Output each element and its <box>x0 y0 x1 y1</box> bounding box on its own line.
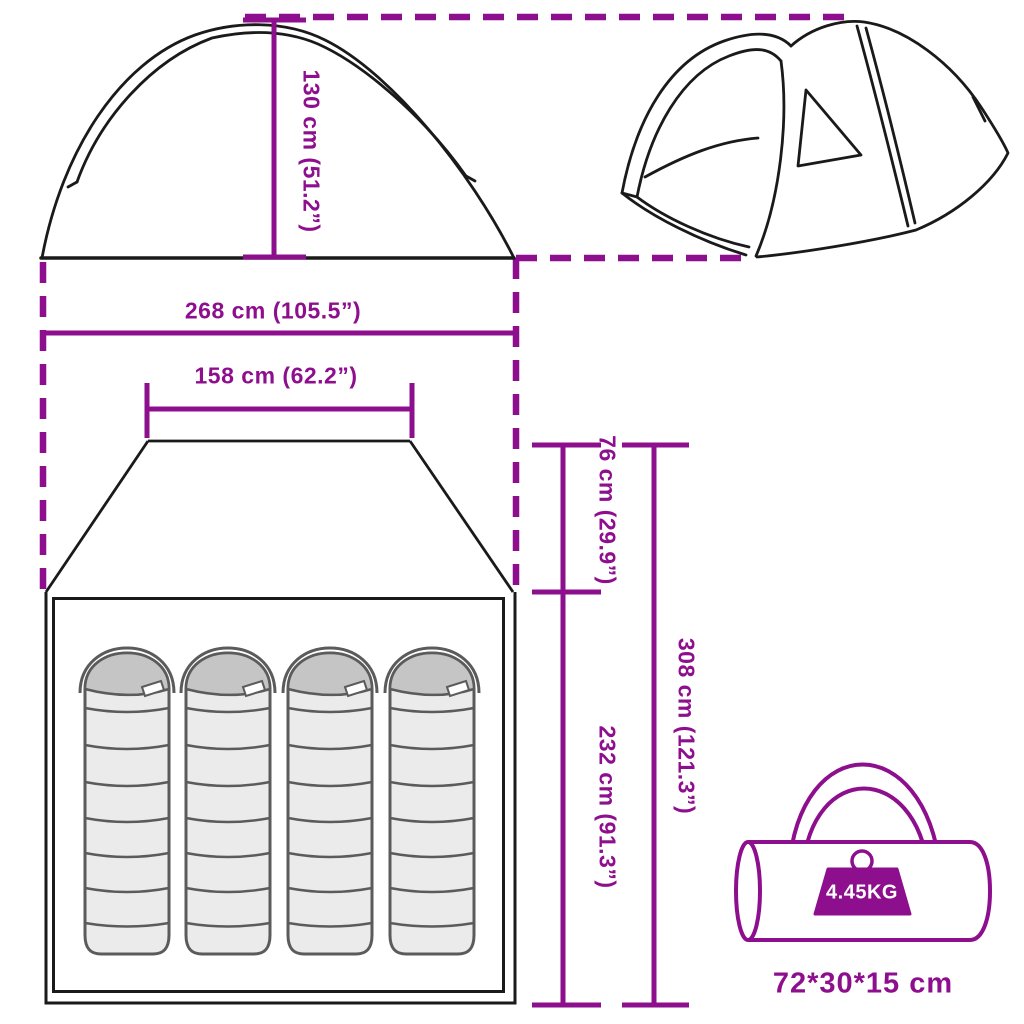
tent-3d-icon <box>622 21 1008 257</box>
sleeping-bag-icon <box>80 648 174 954</box>
tent-side-view-icon <box>41 25 514 258</box>
outer-width-dimension-label: 268 cm (105.5”) <box>185 298 361 325</box>
sleeping-bag-icon <box>283 648 377 954</box>
package-weight-label: 4.45KG <box>826 882 898 905</box>
porch-depth-dimension-line <box>532 445 601 1005</box>
inner-width-dimension-line <box>147 383 412 438</box>
package-size-label: 72*30*15 cm <box>773 968 953 1001</box>
inner-length-dimension-label: 232 cm (91.3”) <box>594 726 621 889</box>
dashed-guide-lines <box>43 17 855 592</box>
height-dimension-label: 130 cm (51.2”) <box>298 70 325 233</box>
carry-bag-icon <box>736 765 990 941</box>
sleeping-bag-icon <box>385 648 479 954</box>
sleeping-bag-icon <box>181 648 275 954</box>
diagram-drawing <box>0 0 1024 1024</box>
tent-dimensions-diagram: 130 cm (51.2”) 268 cm (105.5”) 158 cm (6… <box>0 0 1024 1024</box>
inner-width-dimension-label: 158 cm (62.2”) <box>195 363 358 390</box>
total-length-dimension-label: 308 cm (121.3”) <box>673 638 700 814</box>
porch-depth-dimension-label: 76 cm (29.9”) <box>594 435 621 585</box>
